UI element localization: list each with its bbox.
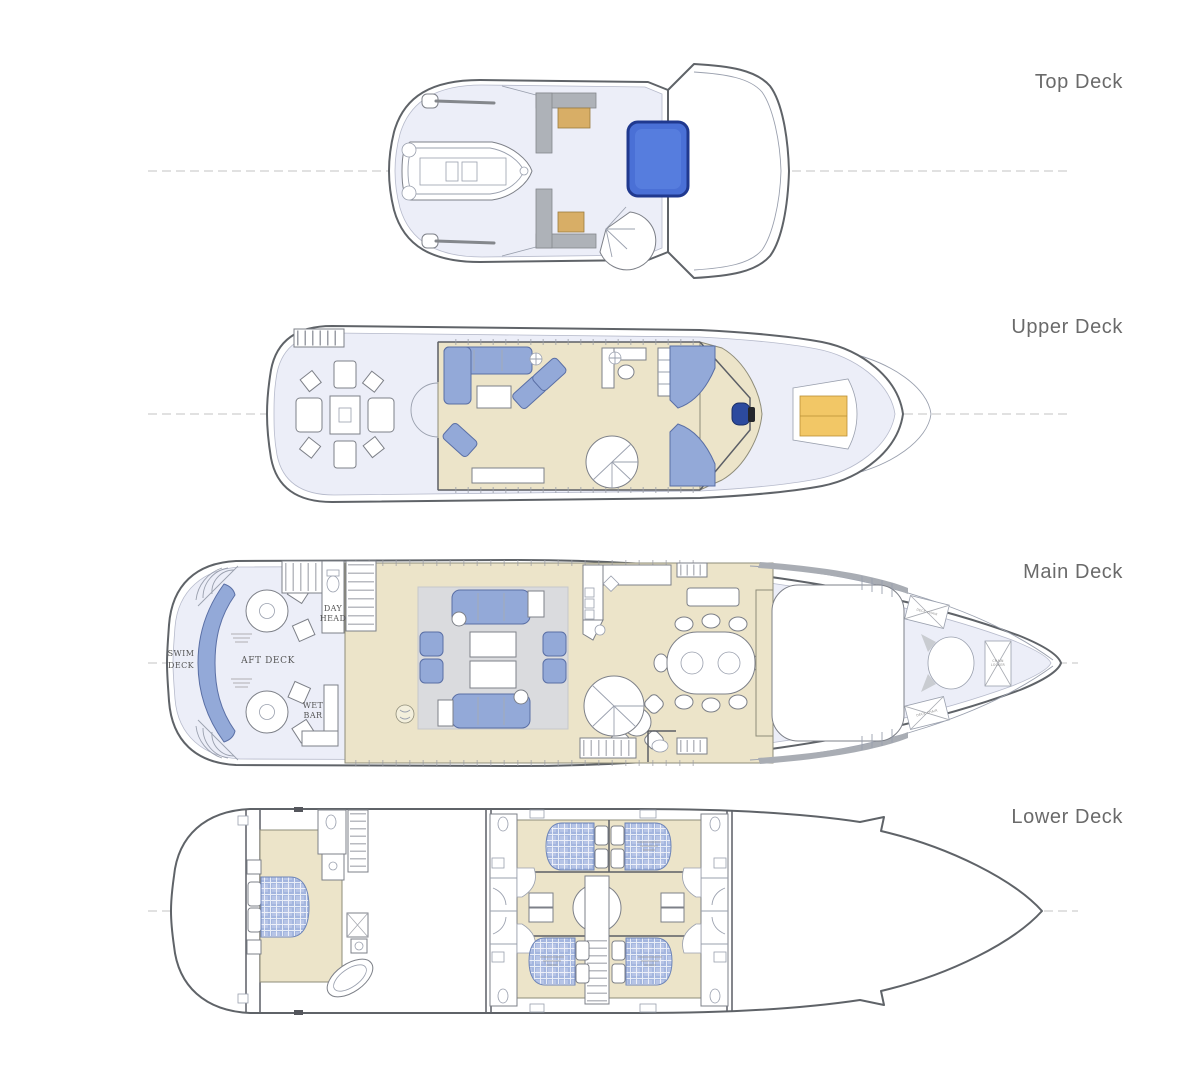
landing-bench — [677, 738, 707, 754]
swim-deck-label-line2: DECK — [168, 661, 195, 670]
hall-sideboard — [687, 588, 739, 606]
day-head-label-line2: HEAD — [320, 614, 347, 623]
main-deck-plan: SWIM DECK AFT DECK — [148, 560, 1078, 766]
day-head-label-line1: DAY — [324, 604, 343, 613]
armchair-3 — [543, 632, 566, 656]
master-cabin-roof — [772, 585, 904, 741]
deck-plan-figure: Top Deck — [0, 0, 1200, 1080]
master-cabin-aft-band — [756, 590, 773, 736]
wet-bar-label-line1: WET — [303, 701, 324, 710]
bow-sun-pad — [793, 379, 857, 449]
wing-wall-top-return — [536, 93, 552, 153]
upper-deck-plan — [148, 326, 1070, 502]
seat-box-top — [558, 108, 590, 128]
stairs-aft-port — [282, 561, 322, 593]
side-table-starboard — [661, 893, 684, 922]
sideboard — [472, 468, 544, 483]
coffee-table — [477, 386, 511, 408]
corridor-stairs — [585, 876, 609, 1004]
side-table-port — [529, 893, 553, 922]
guest-bathrooms-port — [490, 814, 517, 1006]
wall-tick-1 — [294, 807, 303, 812]
svg-text:LOCKER: LOCKER — [991, 663, 1006, 667]
deck-plan-canvas: Top Deck — [0, 0, 1200, 1080]
aft-deck-label: AFT DECK — [240, 656, 295, 666]
main-deck-label: Main Deck — [1023, 561, 1123, 583]
aft-stair-hatch — [294, 329, 344, 347]
stairs-aft-inner — [346, 561, 376, 631]
wing-wall-bottom-return — [536, 189, 552, 248]
wall-tick-2 — [294, 1010, 303, 1015]
armchair-4 — [543, 659, 566, 683]
jacuzzi-pool — [628, 122, 688, 196]
vip-stairs — [348, 810, 368, 872]
coffee-table-2 — [470, 661, 516, 688]
spiral-staircase-upper-deck — [586, 436, 638, 488]
swim-deck-label-line1: SWIM — [168, 649, 195, 658]
top-deck-label: Top Deck — [1035, 71, 1124, 93]
plant — [396, 705, 414, 723]
chain-locker: CHAIN LOCKER — [985, 641, 1011, 686]
armchair-2 — [420, 659, 443, 683]
top-deck-plan — [148, 64, 1070, 278]
tender-boat — [402, 142, 532, 200]
coffee-table-1 — [470, 632, 516, 657]
bow-hatch-oval — [928, 637, 974, 689]
guest-bathrooms-starboard — [701, 814, 728, 1006]
foyer-stair-hatch — [677, 563, 707, 577]
aft-dining-set — [296, 361, 394, 468]
spiral-staircase-main-deck — [580, 676, 644, 758]
vip-bathroom — [318, 810, 346, 880]
wet-bar-label-line2: BAR — [304, 711, 323, 720]
lower-deck-label: Lower Deck — [1011, 806, 1123, 828]
lower-deck-plan — [148, 807, 1078, 1015]
upper-deck-label: Upper Deck — [1011, 316, 1123, 338]
armchair-1 — [420, 632, 443, 656]
seat-box-bottom — [558, 212, 584, 232]
